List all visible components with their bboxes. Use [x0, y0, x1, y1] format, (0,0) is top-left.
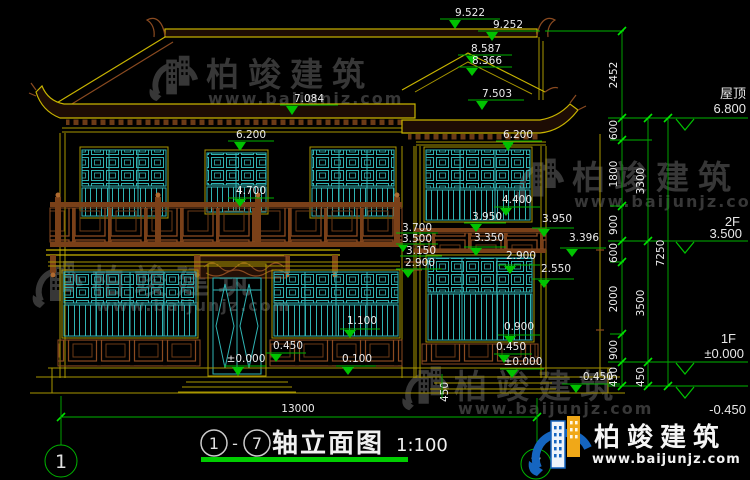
level-label-1f: 1F	[721, 331, 736, 346]
chain-dim: 3300	[635, 168, 647, 195]
dim-label: 2.550	[541, 263, 571, 275]
level-value-base: -0.450	[709, 402, 746, 417]
axis-bubble-1: 1	[45, 445, 77, 477]
chain-dim: 2452	[608, 62, 620, 89]
dim-label: 0.450	[496, 341, 526, 353]
dim-label: 2.900	[405, 257, 435, 269]
dim-label: 3.150	[406, 245, 436, 257]
watermark-url: www.baijunjz.com	[458, 399, 653, 418]
watermark-right: 柏竣建筑 www.baijunjz.com	[516, 159, 750, 211]
chain-dim: 600	[608, 243, 620, 263]
chain-dim: 450	[635, 367, 647, 387]
chain-dim: 900	[608, 215, 620, 235]
dim-label: 0.450	[273, 340, 303, 352]
entry-steps	[178, 377, 296, 392]
tower-eave	[402, 104, 578, 133]
total-width-dim: 13000	[281, 403, 314, 415]
brand-url: www.baijunjz.com	[592, 452, 741, 467]
dim-label: 0.100	[342, 353, 372, 365]
level-panel: 屋顶 6.800 2F 3.500 1F ±0.000 -0.450 2452 …	[545, 27, 748, 417]
dim-label: 8.587	[471, 43, 501, 55]
title-separator: -	[232, 434, 238, 453]
drawing-scale: 1:100	[396, 435, 448, 456]
level-value-2f: 3.500	[709, 226, 742, 241]
ridge-ornament-right	[537, 18, 555, 37]
rafter-row-main	[66, 119, 412, 125]
dim-label: 3.350	[474, 232, 504, 244]
dim-label: 7.084	[294, 93, 324, 105]
dim-label: 4.700	[236, 185, 266, 197]
chain-dim: 2000	[608, 286, 620, 313]
sill-band-left	[58, 340, 200, 366]
dim-label: 1.100	[347, 315, 377, 327]
brand-logo: 柏竣建筑 www.baijunjz.com	[529, 416, 741, 476]
dim-label: 8.366	[472, 55, 502, 67]
chain-dim: 7250	[655, 240, 667, 267]
roof-slope-left	[55, 37, 165, 104]
dim-label: 3.396	[569, 232, 599, 244]
cad-elevation-screenshot: 柏竣建筑 www.baijunjz.com 柏竣建筑 www.baijunjz.…	[0, 0, 750, 480]
drawing-title: 轴立面图	[272, 428, 384, 458]
title-axis-right: 7	[252, 434, 262, 453]
title-axis-left: 1	[209, 434, 219, 453]
dim-label: 7.503	[482, 88, 512, 100]
watermark-brand: 柏竣建筑	[572, 159, 740, 196]
watermark-brand: 柏竣建筑	[206, 56, 374, 93]
chain-dim: 3500	[635, 290, 647, 317]
title-underline	[201, 457, 408, 462]
dim-label: 9.252	[493, 19, 523, 31]
chain-dim: 450	[608, 367, 620, 387]
window-2f-unit1	[80, 147, 168, 218]
carved-bracket-panel	[200, 256, 286, 278]
dim-label: 9.522	[455, 7, 485, 19]
watermark-logo-icon	[149, 56, 195, 101]
chain-dim: 900	[608, 340, 620, 360]
dim-label: 4.400	[502, 194, 532, 206]
watermark-top: 柏竣建筑 www.baijunjz.com	[149, 56, 403, 108]
dim-label: ±0.000	[504, 356, 543, 368]
main-ridge	[165, 29, 537, 37]
chain-dim: 1800	[608, 161, 620, 188]
elevation-canvas: 柏竣建筑 www.baijunjz.com 柏竣建筑 www.baijunjz.…	[0, 0, 750, 480]
axis-number: 1	[55, 451, 67, 473]
dim-label: ±0.000	[227, 353, 266, 365]
ridge-ornament-left	[147, 18, 165, 37]
dim-label: 6.200	[236, 129, 266, 141]
chain-dim: 600	[608, 120, 620, 140]
dim-label: 0.900	[504, 321, 534, 333]
level-value-1f: ±0.000	[704, 346, 744, 361]
dim-label: 2.900	[506, 250, 536, 262]
level-value-roof: 6.800	[713, 101, 746, 116]
dim-label: 3.500	[402, 233, 432, 245]
eave-tip-left	[29, 83, 36, 96]
dim-label: 3.950	[472, 211, 502, 223]
dim-label: 3.950	[542, 213, 572, 225]
window-2f-unit3	[310, 147, 396, 218]
title-block: 1 - 7 轴立面图 1:100	[201, 428, 448, 462]
level-label-roof: 屋顶	[720, 86, 746, 101]
dim-label: 450	[439, 382, 451, 402]
brand-name: 柏竣建筑	[594, 422, 726, 452]
dim-label: 6.200	[503, 129, 533, 141]
